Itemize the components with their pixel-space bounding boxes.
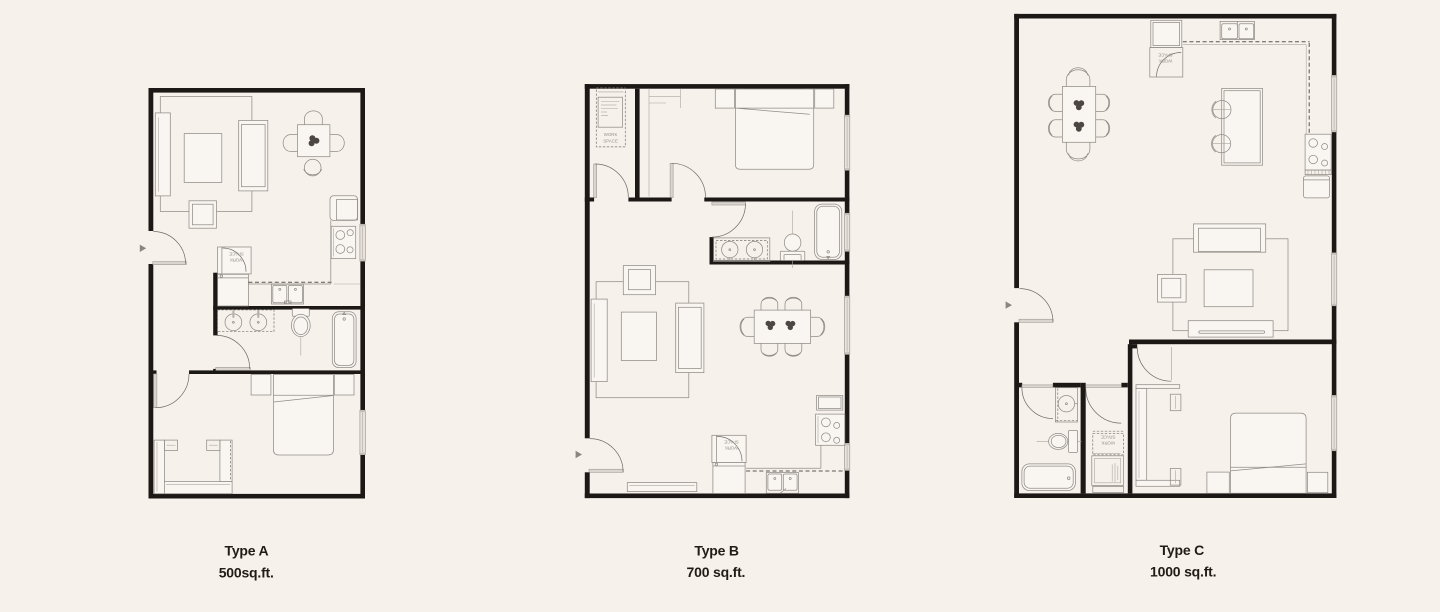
svg-text:WORKSPACE: WORKSPACE [1158, 53, 1173, 64]
svg-text:Type B: Type B [694, 543, 739, 559]
svg-text:700 sq.ft.: 700 sq.ft. [687, 564, 746, 580]
svg-text:1000 sq.ft.: 1000 sq.ft. [1150, 563, 1216, 579]
svg-text:500sq.ft.: 500sq.ft. [219, 565, 274, 581]
svg-text:Type A: Type A [225, 543, 269, 559]
svg-text:Type C: Type C [1160, 542, 1205, 558]
svg-text:WORKSPACE: WORKSPACE [724, 439, 739, 450]
svg-text:WORKSPACE: WORKSPACE [1101, 434, 1116, 445]
svg-text:WORKSPACE: WORKSPACE [229, 252, 244, 263]
svg-text:WORKSPACE: WORKSPACE [603, 132, 618, 144]
